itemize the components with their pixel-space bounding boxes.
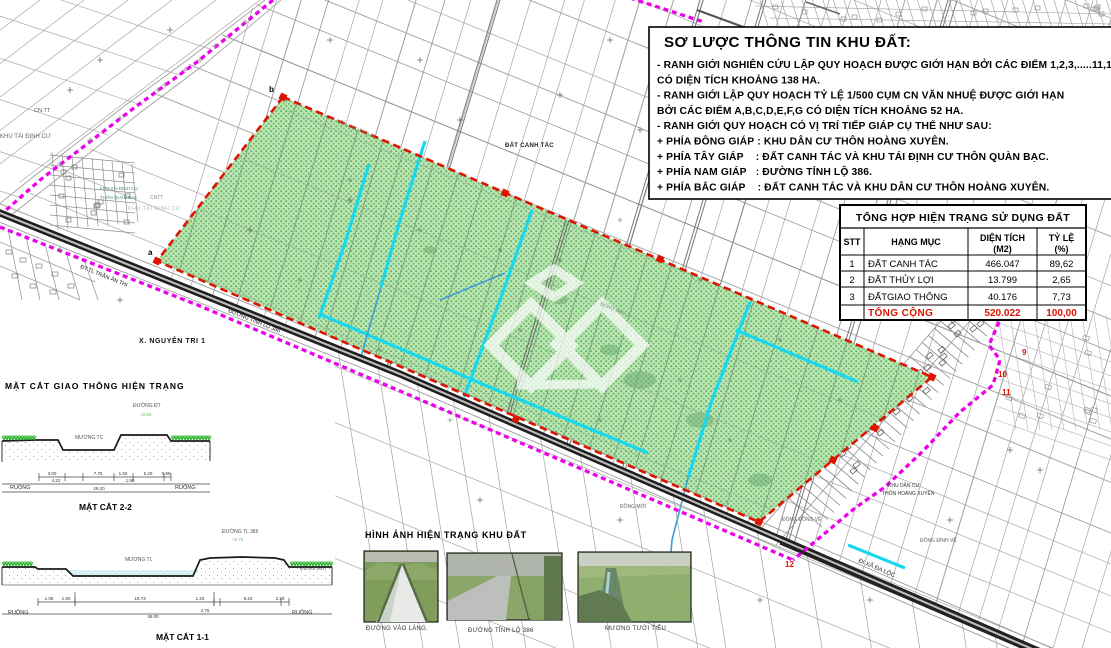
svg-text:(%): (%) — [1055, 244, 1069, 254]
svg-text:1.50: 1.50 — [119, 471, 128, 476]
svg-text:- RANH GIỚI QUY HOẠCH CÓ VỊ TR: - RANH GIỚI QUY HOẠCH CÓ VỊ TRÍ TIẾP GIÁ… — [657, 119, 992, 132]
svg-text:+ PHÍA NAM GIÁP : ĐƯỜNG TỈN: + PHÍA NAM GIÁP : ĐƯỜNG TỈNH LỘ 386. — [657, 165, 872, 178]
svg-text:+2.75: +2.75 — [232, 537, 244, 542]
svg-text:MƯƠNG TL: MƯƠNG TL — [125, 557, 153, 563]
svg-text:2.75: 2.75 — [201, 608, 210, 613]
svg-text:X. NGUYỄN TRI 1: X. NGUYỄN TRI 1 — [139, 336, 206, 345]
svg-text:12: 12 — [785, 560, 794, 569]
svg-text:3.00: 3.00 — [48, 471, 57, 476]
svg-text:ĐẤTGIAO THÔNG: ĐẤTGIAO THÔNG — [868, 292, 948, 303]
svg-text:466.047: 466.047 — [985, 259, 1019, 270]
svg-text:CÓ DIỆN TÍCH KHOẢNG 138 HA.: CÓ DIỆN TÍCH KHOẢNG 138 HA. — [657, 73, 820, 86]
svg-text:STT: STT — [844, 237, 862, 247]
svg-text:1.50: 1.50 — [62, 596, 71, 601]
svg-text:ĐƯỜNG TL 386: ĐƯỜNG TL 386 — [222, 528, 259, 535]
svg-text:+ PHÍA TÂY GIÁP : ĐẤT CANH: + PHÍA TÂY GIÁP : ĐẤT CANH TÁC VÀ KHU TÁ… — [657, 150, 1049, 163]
svg-text:1.08: 1.08 — [45, 596, 54, 601]
svg-text:ĐƯỜNG TỈNH LỘ 386: ĐƯỜNG TỈNH LỘ 386 — [468, 627, 534, 634]
svg-text:+ PHÍA ĐÔNG GIÁP : KHU DÂN CƯ: + PHÍA ĐÔNG GIÁP : KHU DÂN CƯ THÔN HOÀNG… — [657, 135, 949, 148]
svg-text:520.022: 520.022 — [984, 308, 1021, 319]
svg-text:5.20: 5.20 — [144, 471, 153, 476]
svg-text:100,00: 100,00 — [1046, 308, 1077, 319]
svg-text:1.20: 1.20 — [196, 596, 205, 601]
svg-text:4.22: 4.22 — [52, 478, 61, 483]
svg-text:KHU DÂN CƯ: KHU DÂN CƯ — [888, 482, 921, 489]
svg-text:40.176: 40.176 — [988, 292, 1017, 303]
svg-text:RUỘNG: RUỘNG — [175, 484, 195, 491]
svg-text:0.90: 0.90 — [162, 471, 171, 476]
svg-text:36.00: 36.00 — [147, 614, 159, 619]
svg-text:DIỆN TÍCH: DIỆN TÍCH — [980, 232, 1025, 243]
svg-text:29.20: 29.20 — [93, 486, 105, 491]
svg-text:RUỘNG: RUỘNG — [8, 609, 28, 616]
svg-text:1.50: 1.50 — [126, 478, 135, 483]
svg-text:13.799: 13.799 — [988, 275, 1017, 286]
svg-text:3: 3 — [849, 292, 854, 303]
svg-text:7.75: 7.75 — [94, 471, 103, 476]
svg-text:2,65: 2,65 — [1052, 275, 1071, 286]
svg-text:RUỘNG: RUỘNG — [10, 484, 30, 491]
svg-text:7,73: 7,73 — [1052, 292, 1071, 303]
svg-text:KHU TÀI ĐỊNH CƯ: KHU TÀI ĐỊNH CƯ — [128, 205, 181, 212]
svg-text:TỶ LỆ: TỶ LỆ — [1049, 232, 1075, 243]
svg-text:MẶT CẮT 1-1: MẶT CẮT 1-1 — [156, 632, 209, 642]
svg-text:CNTT: CNTT — [150, 195, 163, 201]
svg-text:ĐƯỜNG ĐT: ĐƯỜNG ĐT — [133, 402, 161, 409]
svg-text:CN.TT: CN.TT — [34, 108, 51, 114]
svg-text:+ PHÍA BẮC GIÁP : ĐẤT CANH: + PHÍA BẮC GIÁP : ĐẤT CANH TÁC VÀ KHU DÂ… — [657, 180, 1049, 193]
svg-text:89,62: 89,62 — [1050, 259, 1074, 270]
svg-text:ĐƯỜNG VÀO LÀNG.: ĐƯỜNG VÀO LÀNG. — [366, 625, 428, 632]
svg-text:MẶT CẮT GIAO THÔNG HIỆN TRẠNG: MẶT CẮT GIAO THÔNG HIỆN TRẠNG — [5, 380, 185, 391]
svg-text:8.22: 8.22 — [244, 596, 253, 601]
svg-text:10: 10 — [998, 370, 1007, 379]
svg-text:a: a — [148, 248, 153, 257]
svg-text:19.73: 19.73 — [134, 596, 146, 601]
svg-text:HÌNH ẢNH HIỆN TRẠNG KHU ĐẤT: HÌNH ẢNH HIỆN TRẠNG KHU ĐẤT — [365, 529, 527, 540]
svg-text:b: b — [269, 85, 274, 94]
svg-text:THÔN QUÀN BẠC: THÔN QUÀN BẠC — [100, 194, 138, 200]
svg-text:BỞI CÁC ĐIỂM A,B,C,D,E,F,G CÓ: BỞI CÁC ĐIỂM A,B,C,D,E,F,G CÓ DIỆN TÍCH … — [657, 104, 963, 117]
svg-text:MẶT CẮT 2-2: MẶT CẮT 2-2 — [79, 502, 132, 512]
svg-text:ĐỒNG ĐỒNG VỀ: ĐỒNG ĐỒNG VỀ — [782, 516, 822, 523]
svg-text:ĐẤT CANH TÁC: ĐẤT CANH TÁC — [868, 259, 938, 270]
svg-text:THÔN HOÀNG XUYÊN: THÔN HOÀNG XUYÊN — [882, 489, 935, 497]
svg-text:ĐỒNG ĐÌNH VỀ: ĐỒNG ĐÌNH VỀ — [920, 537, 957, 544]
svg-text:MƯƠNG TƯỚI TIÊU: MƯƠNG TƯỚI TIÊU — [605, 624, 666, 632]
svg-text:ĐẤT THỦY LỢI: ĐẤT THỦY LỢI — [868, 274, 934, 286]
svg-text:RUỘNG: RUỘNG — [292, 609, 312, 616]
svg-text:SƠ LƯỢC THÔNG TIN KHU ĐẤT:: SƠ LƯỢC THÔNG TIN KHU ĐẤT: — [664, 33, 911, 51]
svg-text:TỔNG CỘNG: TỔNG CỘNG — [868, 306, 933, 319]
svg-text:- RANH GIỚI LẬP QUY HOẠCH TỶ L: - RANH GIỚI LẬP QUY HOẠCH TỶ LỆ 1/500 CỤ… — [657, 89, 1064, 102]
svg-text:- RANH GIỚI NGHIÊN CỨU LẬP QUY: - RANH GIỚI NGHIÊN CỨU LẬP QUY HOẠCH ĐƯỢ… — [657, 58, 1111, 71]
svg-text:ĐỒNG MỚI: ĐỒNG MỚI — [620, 503, 646, 510]
svg-text:HẠNG MỤC: HẠNG MỤC — [891, 237, 941, 247]
svg-text:1: 1 — [849, 259, 854, 270]
svg-text:ĐẤT CANH TÁC: ĐẤT CANH TÁC — [505, 142, 554, 149]
svg-text:+2.56: +2.56 — [140, 412, 152, 417]
svg-text:KHU TÁI ĐỊNH CƯ: KHU TÁI ĐỊNH CƯ — [100, 185, 138, 191]
svg-text:KHU TÁI ĐỊNH CƯ: KHU TÁI ĐỊNH CƯ — [0, 133, 51, 140]
svg-text:MƯƠNG TC: MƯƠNG TC — [75, 435, 104, 441]
svg-text:2.20: 2.20 — [276, 596, 285, 601]
svg-text:11: 11 — [1002, 388, 1011, 397]
svg-text:9: 9 — [1022, 348, 1027, 357]
svg-text:2: 2 — [849, 275, 854, 286]
svg-text:TỔNG HỢP HIỆN TRẠNG SỬ DỤNG ĐẤ: TỔNG HỢP HIỆN TRẠNG SỬ DỤNG ĐẤT — [856, 211, 1070, 224]
svg-text:(M2): (M2) — [993, 244, 1012, 254]
